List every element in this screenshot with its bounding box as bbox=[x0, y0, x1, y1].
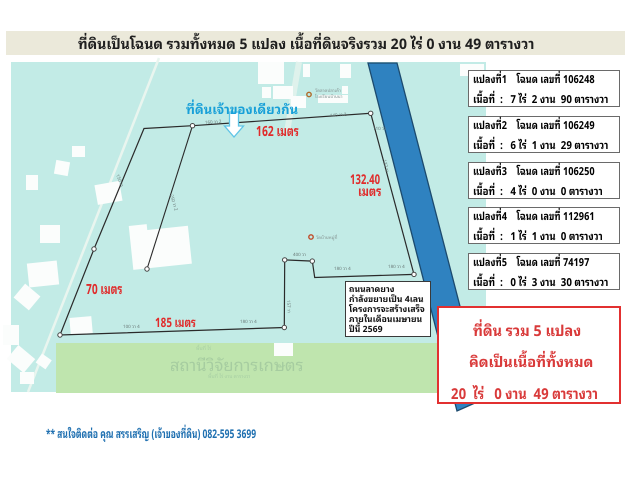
svg-text:157 วา: 157 วา bbox=[285, 300, 294, 313]
svg-text:110 วา: 110 วา bbox=[373, 124, 386, 132]
svg-text:180 วา 4: 180 วา 4 bbox=[388, 262, 405, 270]
svg-text:140 วา 2: 140 วา 2 bbox=[330, 110, 348, 119]
svg-text:400 วา: 400 วา bbox=[293, 250, 306, 258]
svg-text:180 วา 4: 180 วา 4 bbox=[240, 317, 257, 325]
svg-text:100 วา 4: 100 วา 4 bbox=[123, 322, 140, 330]
svg-text:โรงเรียนบ้านนา: โรงเรียนบ้านนา bbox=[315, 92, 343, 100]
svg-text:พื้นที่ ไร่: พื้นที่ ไร่ bbox=[196, 344, 212, 352]
svg-text:วัดบ้านหมู่ที่: วัดบ้านหมู่ที่ bbox=[316, 233, 337, 241]
svg-text:180 วา 4: 180 วา 4 bbox=[334, 264, 351, 272]
svg-text:พื้นที่ ไร่ งาน ตารางวา: พื้นที่ ไร่ งาน ตารางวา bbox=[208, 372, 250, 380]
